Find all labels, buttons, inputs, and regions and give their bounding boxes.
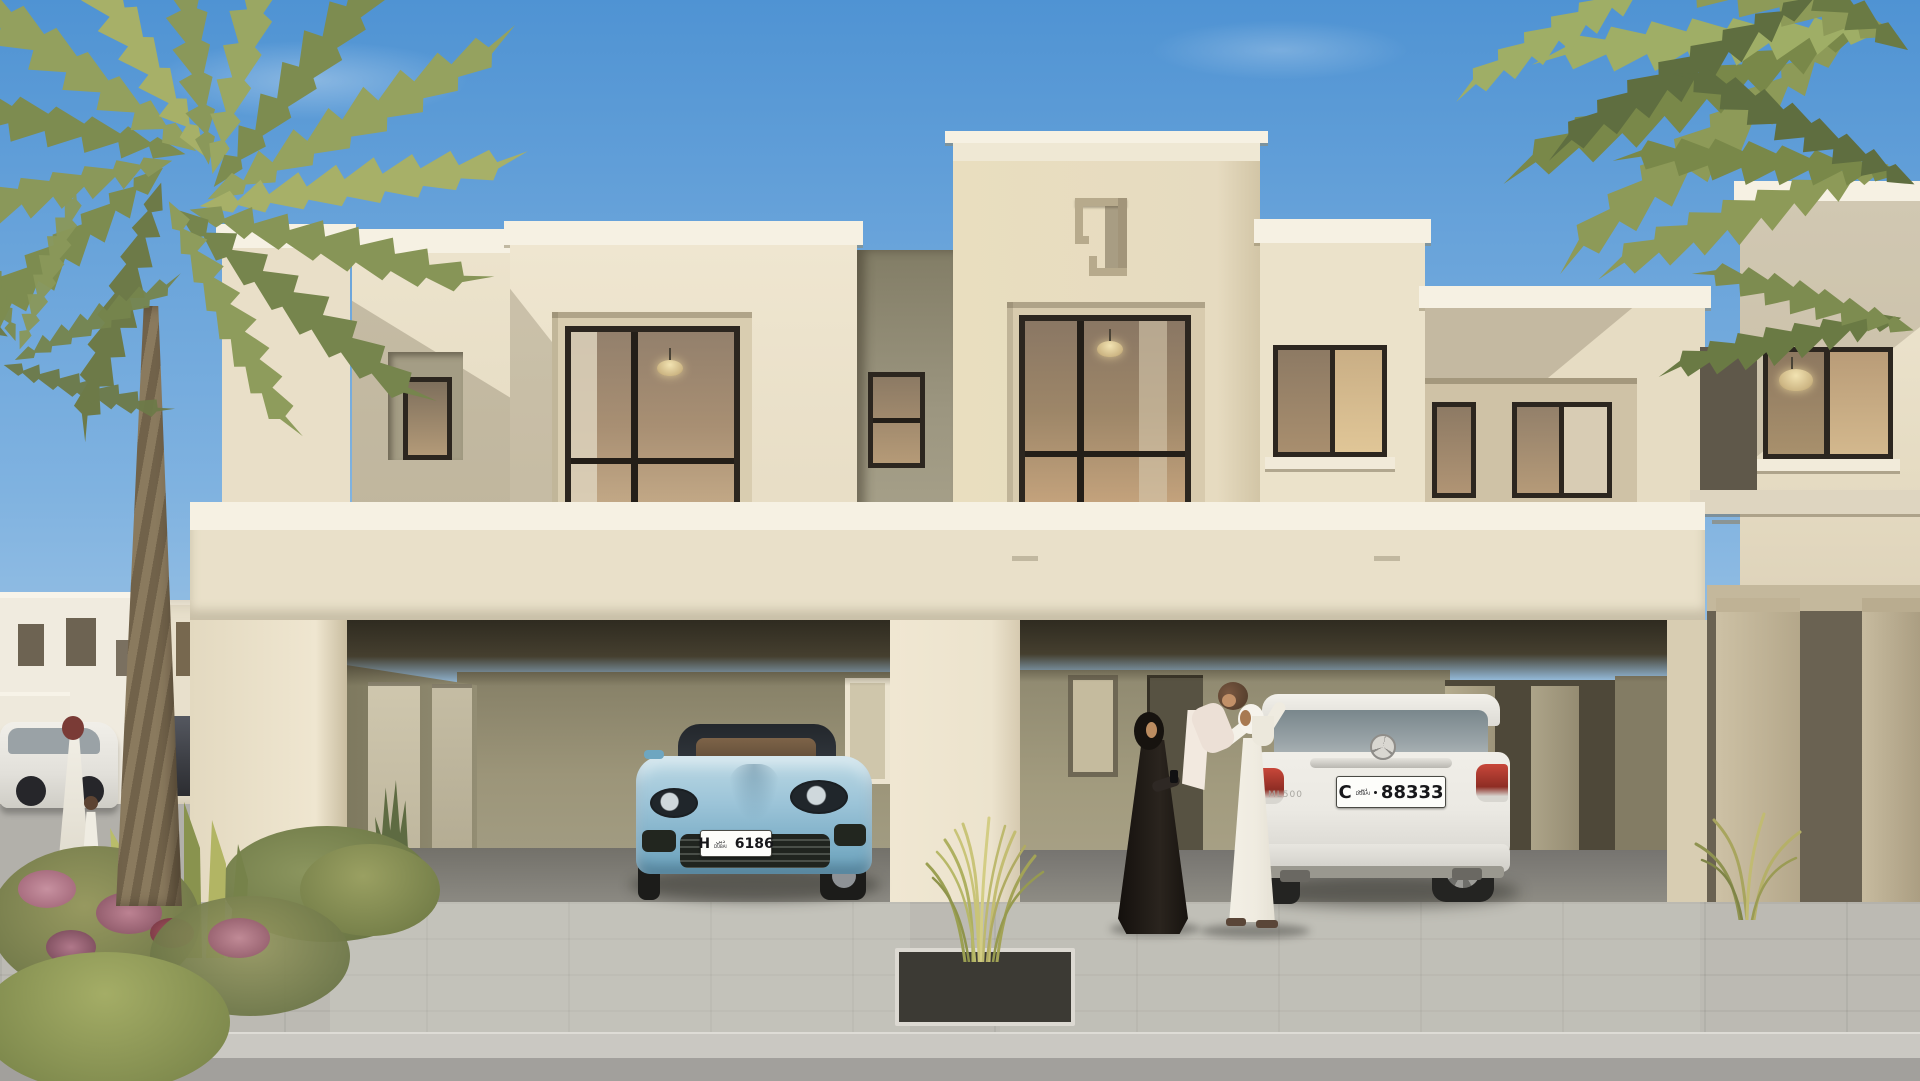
tower-window-mullion [1077, 321, 1084, 502]
recess-window-bar [873, 418, 920, 423]
distant-white-car-glass [8, 728, 100, 754]
carport-left-soffit [347, 620, 890, 686]
plate-number: 6186 [735, 836, 774, 852]
volume3-window [1273, 345, 1387, 457]
flower-cluster [208, 918, 270, 958]
cloud [1150, 20, 1410, 80]
recess-window [868, 372, 925, 468]
suv-taillight-right [1476, 764, 1508, 802]
driveway-apron-right [1000, 902, 1700, 1032]
plate-letter: C [1338, 782, 1351, 803]
man-sandal-left [1226, 918, 1246, 926]
carport-right-backwall-window-glass [1073, 680, 1113, 772]
man-sandal-right [1256, 920, 1278, 928]
tower-cornice-upper [945, 131, 1268, 143]
toddler [1178, 680, 1262, 796]
toddler-face [1222, 694, 1236, 707]
planter-grass [893, 812, 1069, 962]
tower-cornice-lower [953, 143, 1260, 161]
plate-letter: H [698, 836, 710, 852]
neighbour-grass-bush [1672, 810, 1822, 920]
tower-window [1019, 315, 1191, 508]
phone [1170, 770, 1178, 783]
tower-window-transom [1025, 451, 1185, 457]
distant-house-window [66, 618, 96, 666]
chandelier [1097, 341, 1123, 357]
volume3-window-sill [1265, 457, 1395, 469]
volume2-window-mullion [631, 332, 638, 504]
tower-motif [1075, 198, 1127, 276]
plate-region: دبي DUBAI [714, 839, 727, 849]
volume3-window-glass-left [1278, 350, 1330, 452]
sports-car-headlight-right [790, 780, 848, 814]
motif-bottom-tick [1089, 256, 1097, 270]
distant-man-headscarf [62, 716, 84, 740]
sports-car-plate: H دبي DUBAI 6186 [700, 830, 772, 857]
sports-car: H دبي DUBAI 6186 [636, 724, 872, 902]
carport-right-soffit [1020, 620, 1667, 682]
suv-exhaust-right [1452, 868, 1482, 880]
sports-car-intake-right [834, 824, 866, 846]
flower-cluster [18, 870, 76, 908]
neighbour-pillar [1862, 598, 1920, 902]
plate-dot [1374, 791, 1377, 794]
distant-car-wheel [16, 776, 46, 806]
palm-crown-left [0, 0, 610, 610]
parapet-vent-dash [1374, 556, 1400, 561]
distant-house-window [18, 624, 44, 666]
tower-window-curtain [1139, 321, 1167, 502]
motif-right [1118, 198, 1127, 276]
motif-left-tick [1075, 236, 1089, 244]
parapet-vent-dash [1012, 556, 1038, 561]
motif-inner-shadow [1105, 206, 1118, 268]
sports-car-intake-left [642, 830, 676, 852]
palm-fronds-right [1398, 0, 1920, 600]
scene-architectural-rendering: H دبي DUBAI 6186 ML500 C دبي DUBAI [0, 0, 1920, 1081]
carport-right-backwall-window [1068, 675, 1118, 777]
carport-left-passage-door2 [432, 684, 472, 864]
woman-face [1146, 722, 1157, 738]
volume3-window-glass-right [1335, 350, 1382, 452]
chandelier [657, 360, 683, 376]
plate-region: دبي DUBAI [1356, 787, 1370, 798]
road [0, 1058, 1920, 1081]
sports-car-mirror [644, 750, 664, 759]
man-shadow [1200, 924, 1310, 938]
plate-number: 88333 [1381, 782, 1444, 803]
sports-car-headlight-left [650, 788, 698, 818]
mercedes-star-icon [1370, 734, 1396, 760]
sports-car-hood-crease [728, 764, 780, 822]
suv-plate: C دبي DUBAI 88333 [1336, 776, 1446, 808]
